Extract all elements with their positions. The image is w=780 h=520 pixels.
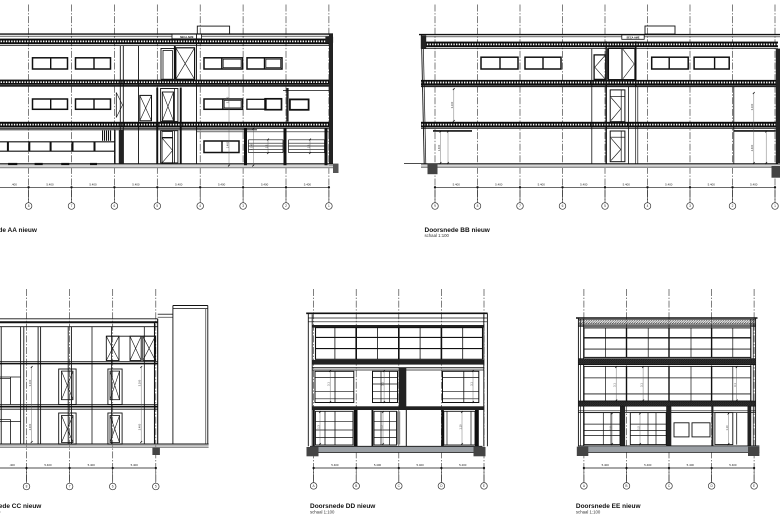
svg-text:6: 6	[114, 204, 116, 208]
svg-text:5.400: 5.400	[46, 183, 54, 187]
svg-text:SECA AME: SECA AME	[180, 35, 194, 39]
svg-text:E: E	[753, 484, 755, 488]
svg-text:SECA AME: SECA AME	[626, 37, 639, 40]
svg-text:3.1: 3.1	[327, 382, 331, 386]
svg-text:4: 4	[647, 204, 649, 208]
svg-text:1.3: 1.3	[306, 144, 310, 148]
svg-text:B: B	[355, 484, 357, 488]
svg-text:1.400: 1.400	[225, 141, 229, 148]
svg-text:3.1: 3.1	[381, 382, 385, 386]
svg-text:8: 8	[26, 485, 28, 489]
svg-text:1: 1	[328, 204, 330, 208]
svg-text:Doorsnede CC nieuw: Doorsnede CC nieuw	[0, 503, 42, 510]
svg-text:7: 7	[71, 204, 73, 208]
svg-text:1.5: 1.5	[636, 426, 640, 430]
svg-text:.400: .400	[11, 183, 17, 187]
svg-text:2: 2	[732, 204, 734, 208]
svg-text:5.400: 5.400	[459, 463, 467, 467]
svg-text:3.1: 3.1	[733, 383, 737, 387]
svg-text:schaal 1:100: schaal 1:100	[310, 510, 335, 515]
svg-text:5.400: 5.400	[602, 463, 610, 467]
svg-text:3.100: 3.100	[750, 103, 754, 110]
svg-text:E: E	[483, 484, 485, 488]
svg-text:5.400: 5.400	[331, 463, 339, 467]
svg-text:5.400: 5.400	[89, 183, 97, 187]
svg-text:5.400: 5.400	[708, 183, 716, 187]
svg-text:5.400: 5.400	[175, 183, 183, 187]
svg-text:5.400: 5.400	[729, 463, 737, 467]
svg-text:1.5: 1.5	[608, 426, 612, 430]
svg-text:3.1: 3.1	[469, 382, 473, 386]
svg-text:schaal 1:100: schaal 1:100	[576, 510, 601, 515]
svg-text:2: 2	[285, 204, 287, 208]
svg-text:2.400: 2.400	[750, 144, 754, 151]
svg-text:5.400: 5.400	[374, 463, 382, 467]
svg-text:5.400: 5.400	[453, 183, 461, 187]
svg-text:3.1: 3.1	[613, 383, 617, 387]
svg-text:5.400: 5.400	[88, 463, 96, 467]
svg-text:7: 7	[519, 204, 521, 208]
svg-text:3.100: 3.100	[138, 379, 142, 386]
svg-text:1.2: 1.2	[264, 144, 268, 148]
svg-text:2.100: 2.100	[250, 143, 254, 150]
svg-text:5.400: 5.400	[131, 463, 139, 467]
svg-text:8: 8	[28, 204, 30, 208]
svg-text:8: 8	[477, 204, 479, 208]
svg-text:3.100: 3.100	[450, 101, 454, 108]
svg-text:5.400: 5.400	[304, 183, 312, 187]
svg-text:5.400: 5.400	[580, 183, 588, 187]
svg-text:5.400: 5.400	[623, 183, 631, 187]
svg-text:5.400: 5.400	[44, 463, 52, 467]
svg-text:3: 3	[689, 204, 691, 208]
svg-text:9: 9	[434, 204, 436, 208]
svg-text:1: 1	[774, 204, 776, 208]
svg-text:7: 7	[69, 485, 71, 489]
svg-text:3.100: 3.100	[28, 379, 32, 386]
svg-text:5: 5	[604, 204, 606, 208]
svg-text:schaal 1:100: schaal 1:100	[425, 233, 450, 238]
svg-text:5.400: 5.400	[750, 183, 758, 187]
svg-text:3.100: 3.100	[225, 96, 229, 103]
svg-text:6: 6	[562, 204, 564, 208]
svg-text:.400: .400	[9, 463, 15, 467]
svg-text:5.400: 5.400	[132, 183, 140, 187]
svg-text:5.400: 5.400	[644, 463, 652, 467]
svg-text:1.3: 1.3	[316, 425, 320, 429]
svg-text:5.400: 5.400	[261, 183, 269, 187]
svg-text:3: 3	[242, 204, 244, 208]
svg-text:5.400: 5.400	[495, 183, 503, 187]
svg-text:3.1: 3.1	[640, 383, 644, 387]
svg-text:5.400: 5.400	[665, 183, 673, 187]
svg-text:2.400: 2.400	[138, 423, 142, 430]
svg-text:5.400: 5.400	[538, 183, 546, 187]
svg-text:5: 5	[156, 204, 158, 208]
svg-text:1.10: 1.10	[725, 425, 729, 431]
svg-text:Doorsnede AA nieuw: Doorsnede AA nieuw	[0, 227, 38, 234]
svg-text:2.400: 2.400	[28, 423, 32, 430]
svg-text:B: B	[625, 484, 627, 488]
svg-text:6: 6	[112, 485, 114, 489]
svg-text:5.400: 5.400	[687, 463, 695, 467]
svg-text:5: 5	[155, 485, 157, 489]
svg-text:1.10: 1.10	[458, 424, 462, 430]
svg-text:5.400: 5.400	[218, 183, 226, 187]
svg-text:5.400: 5.400	[416, 463, 424, 467]
svg-text:1.5: 1.5	[379, 425, 383, 429]
svg-text:1.400: 1.400	[437, 144, 441, 151]
svg-text:4: 4	[199, 204, 201, 208]
